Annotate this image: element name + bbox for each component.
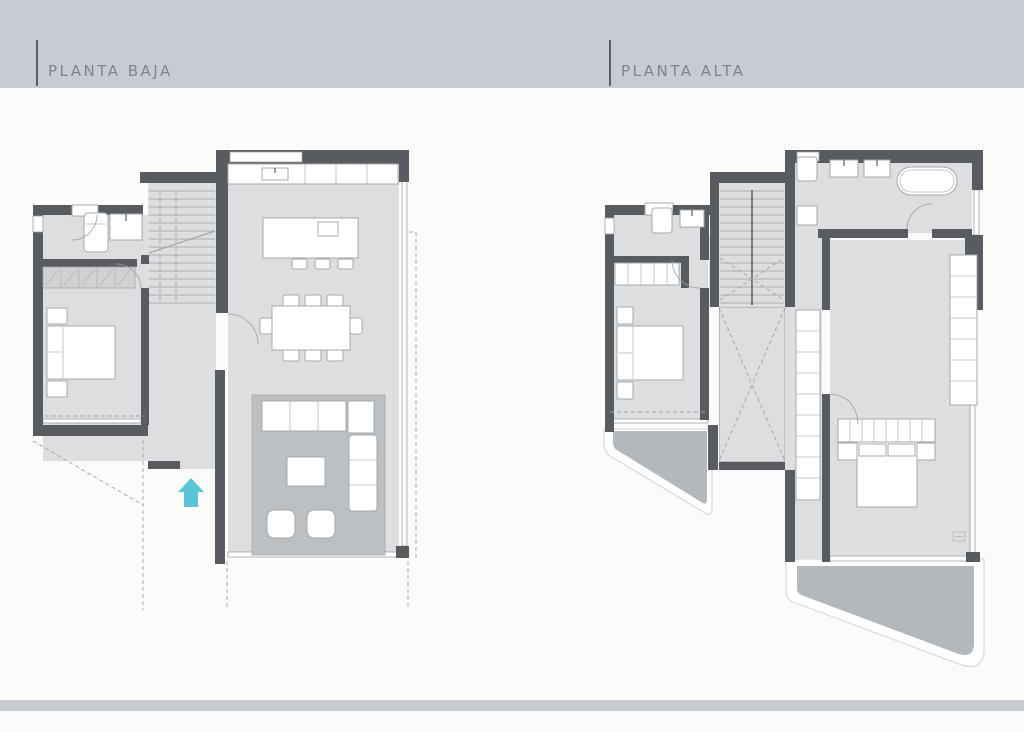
floorplans-canvas bbox=[0, 0, 1024, 732]
planta-baja-floorplan bbox=[33, 150, 416, 610]
hall-wardrobe bbox=[796, 310, 820, 500]
coffee-table bbox=[287, 457, 325, 486]
entrance-arrow-icon bbox=[178, 478, 204, 507]
wardrobe bbox=[615, 263, 679, 285]
kitchen-counter bbox=[228, 164, 398, 184]
toilet bbox=[84, 213, 108, 252]
bathtub bbox=[897, 167, 957, 195]
master-wardrobe bbox=[950, 255, 977, 405]
wardrobe bbox=[43, 267, 135, 288]
void-cross bbox=[719, 307, 785, 462]
sink bbox=[110, 214, 142, 240]
terrace-large bbox=[786, 559, 984, 666]
planta-alta-floorplan bbox=[604, 150, 984, 666]
footer-band bbox=[0, 700, 1024, 711]
brochure-page: PLANTA BAJA PLANTA ALTA bbox=[0, 0, 1024, 732]
terrace-small bbox=[604, 429, 712, 514]
